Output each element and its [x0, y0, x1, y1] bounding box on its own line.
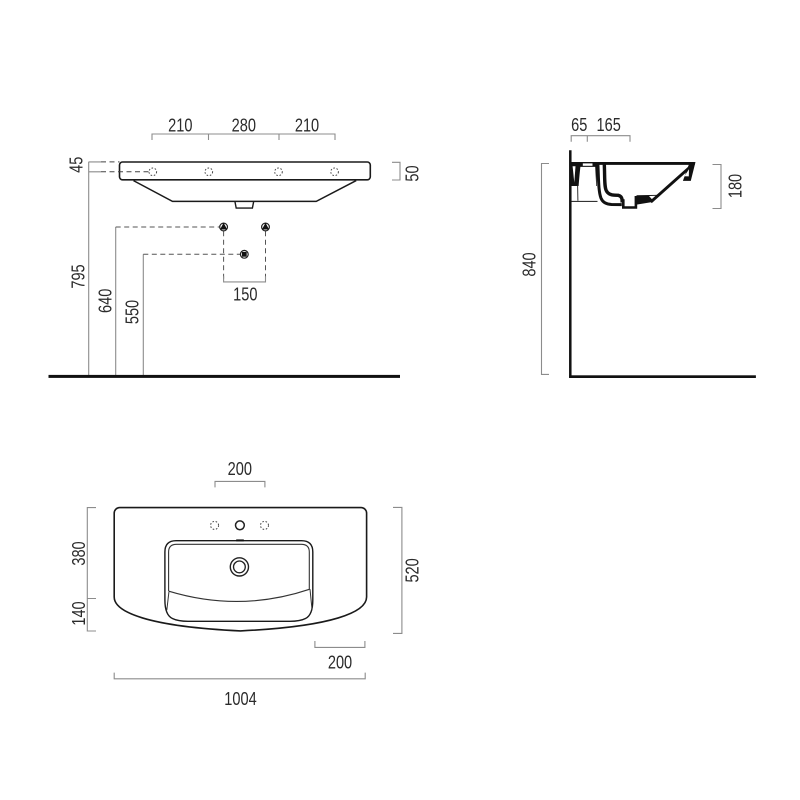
svg-text:140: 140: [68, 601, 89, 625]
svg-text:380: 380: [68, 541, 89, 565]
svg-text:280: 280: [232, 114, 256, 135]
svg-text:180: 180: [724, 174, 745, 198]
svg-text:200: 200: [228, 458, 252, 479]
svg-text:200: 200: [328, 652, 352, 673]
svg-text:1004: 1004: [224, 688, 256, 709]
svg-text:165: 165: [597, 114, 621, 135]
svg-text:210: 210: [295, 114, 319, 135]
svg-text:65: 65: [571, 114, 587, 135]
svg-text:210: 210: [168, 114, 192, 135]
svg-text:550: 550: [122, 300, 143, 324]
svg-text:840: 840: [518, 252, 539, 276]
svg-text:520: 520: [401, 558, 422, 582]
svg-text:795: 795: [67, 264, 88, 288]
svg-text:45: 45: [65, 157, 86, 173]
svg-text:50: 50: [401, 165, 422, 181]
svg-text:150: 150: [233, 284, 257, 305]
svg-text:640: 640: [95, 289, 116, 313]
